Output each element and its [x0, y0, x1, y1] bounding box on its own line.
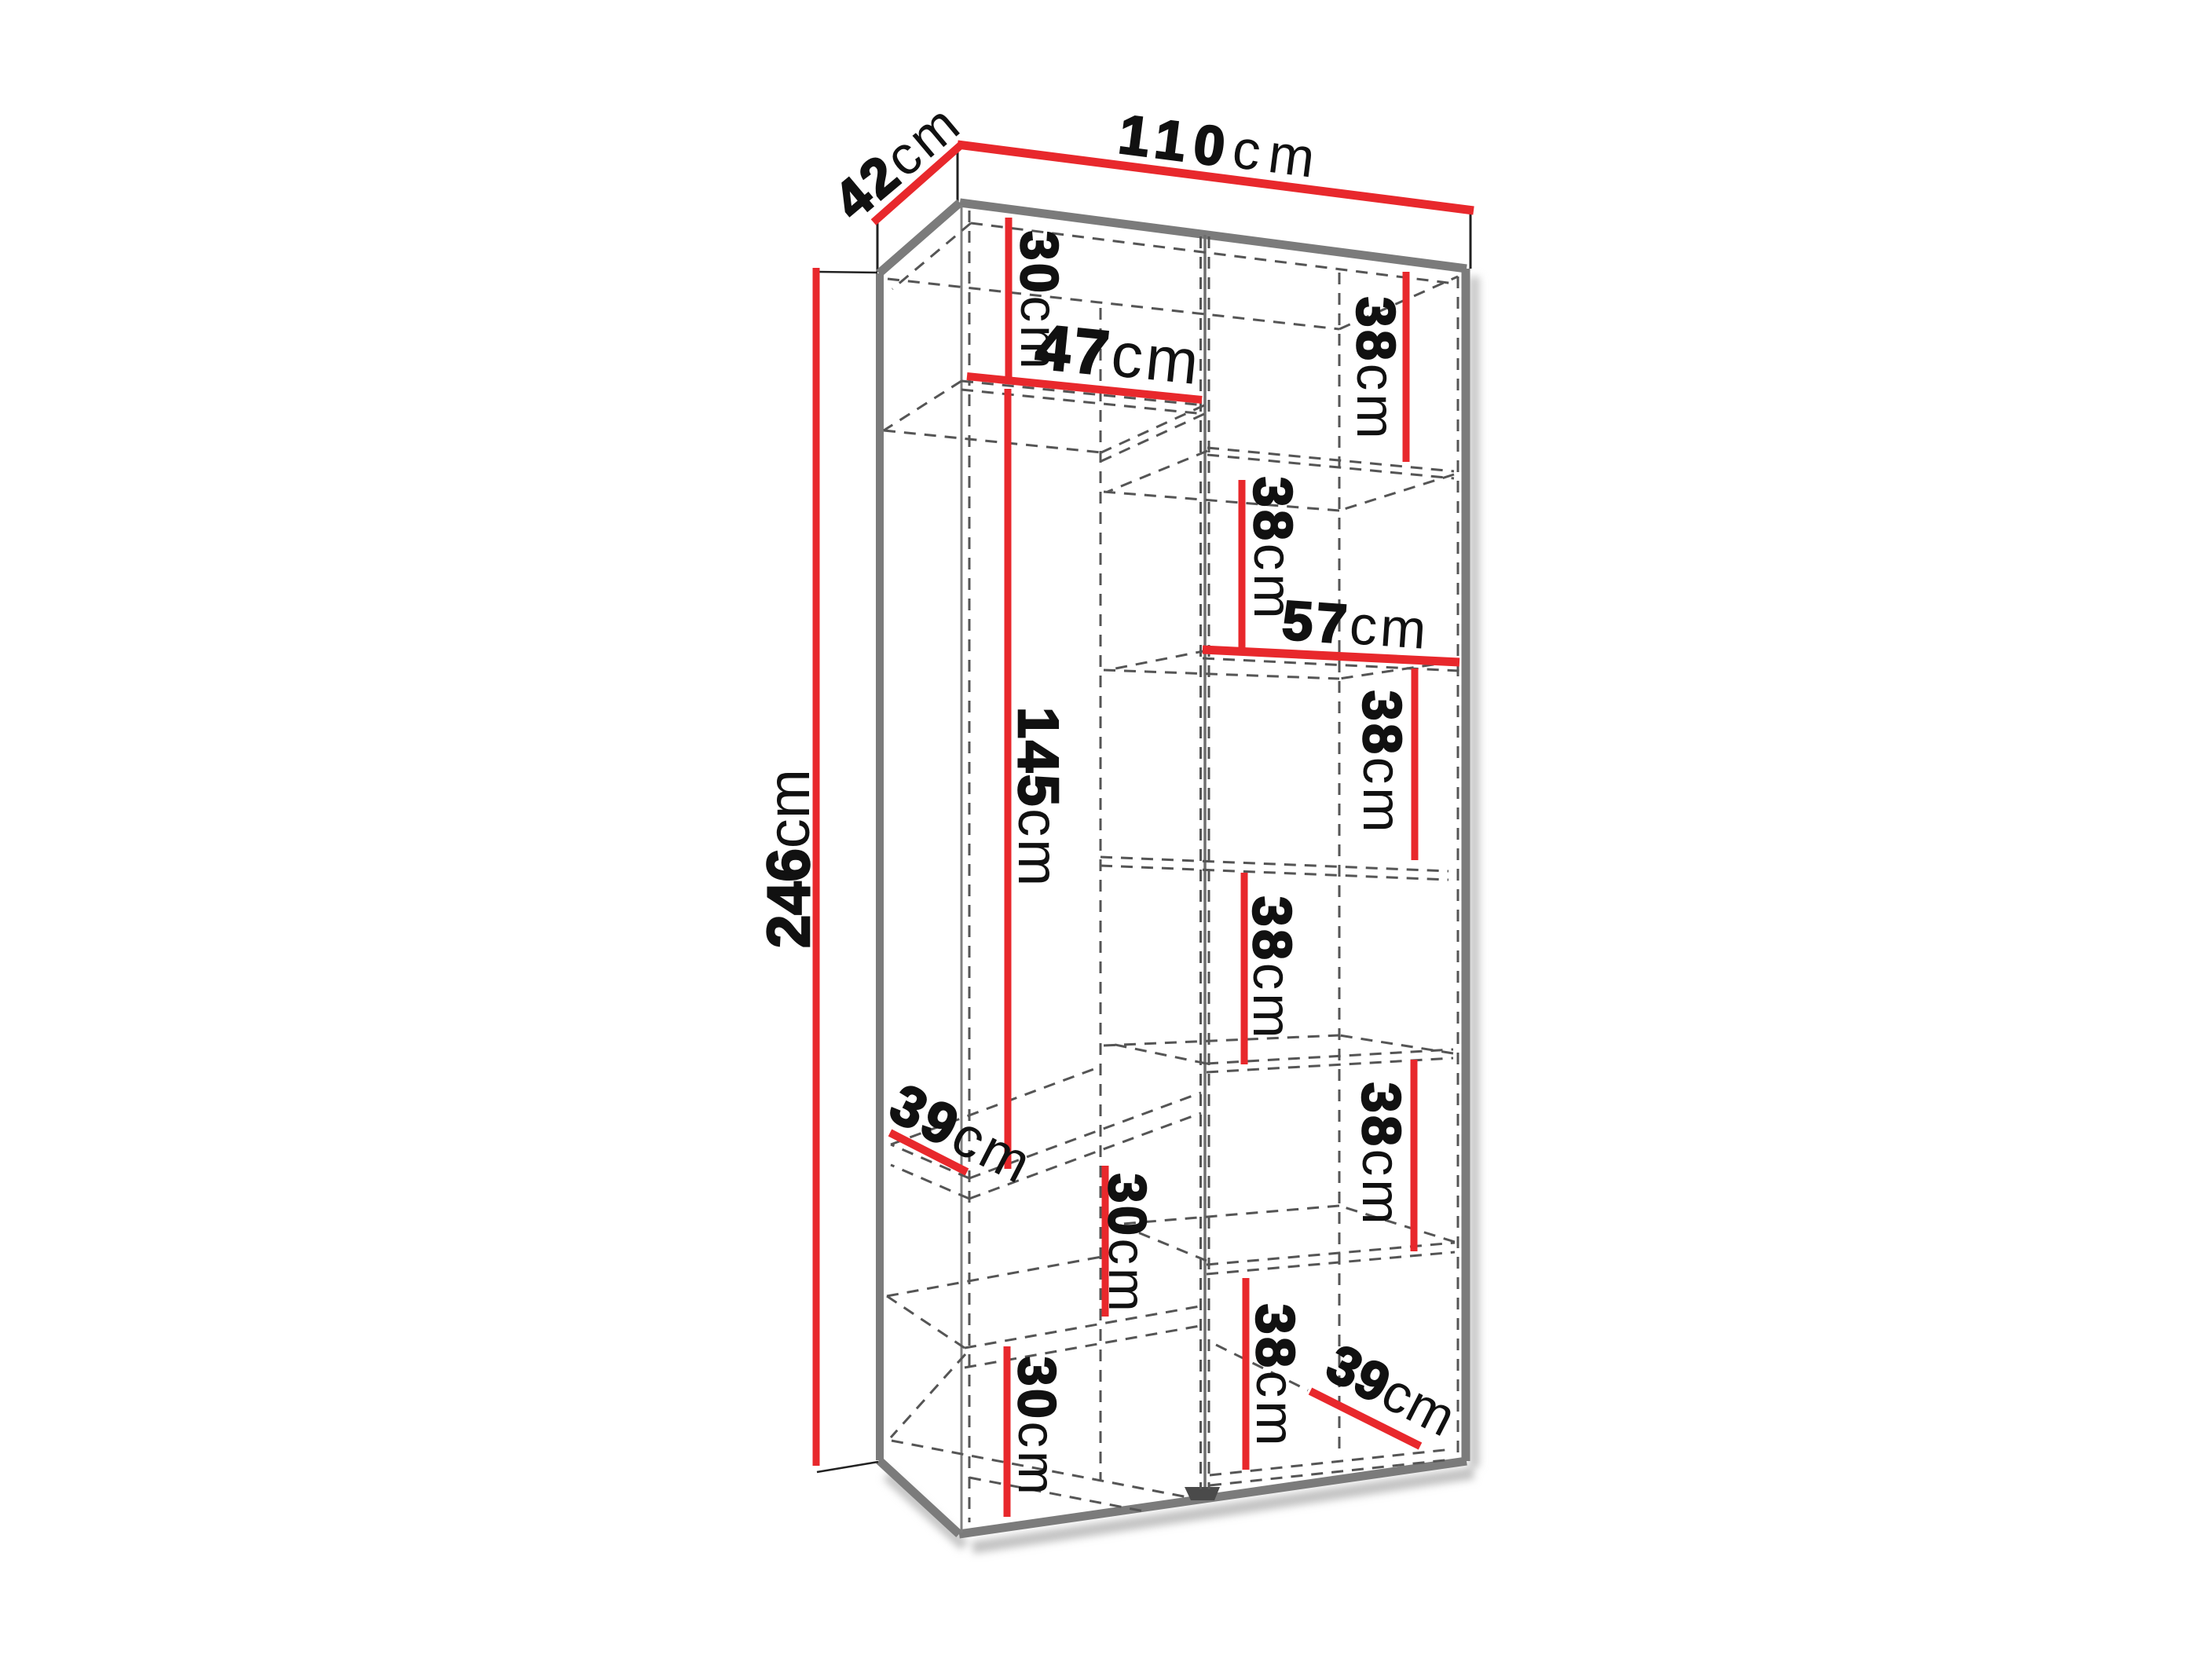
svg-text:30cm: 30cm	[1097, 1174, 1156, 1315]
svg-text:38cm: 38cm	[1242, 896, 1302, 1042]
svg-text:38cm: 38cm	[1243, 477, 1303, 622]
svg-text:30cm: 30cm	[1007, 1357, 1066, 1498]
svg-text:246cm: 246cm	[756, 769, 822, 948]
svg-text:38cm: 38cm	[1245, 1304, 1306, 1449]
svg-text:38cm: 38cm	[1352, 690, 1412, 836]
svg-text:145cm: 145cm	[1006, 707, 1069, 888]
svg-text:38cm: 38cm	[1346, 297, 1406, 442]
svg-text:38cm: 38cm	[1351, 1082, 1412, 1228]
